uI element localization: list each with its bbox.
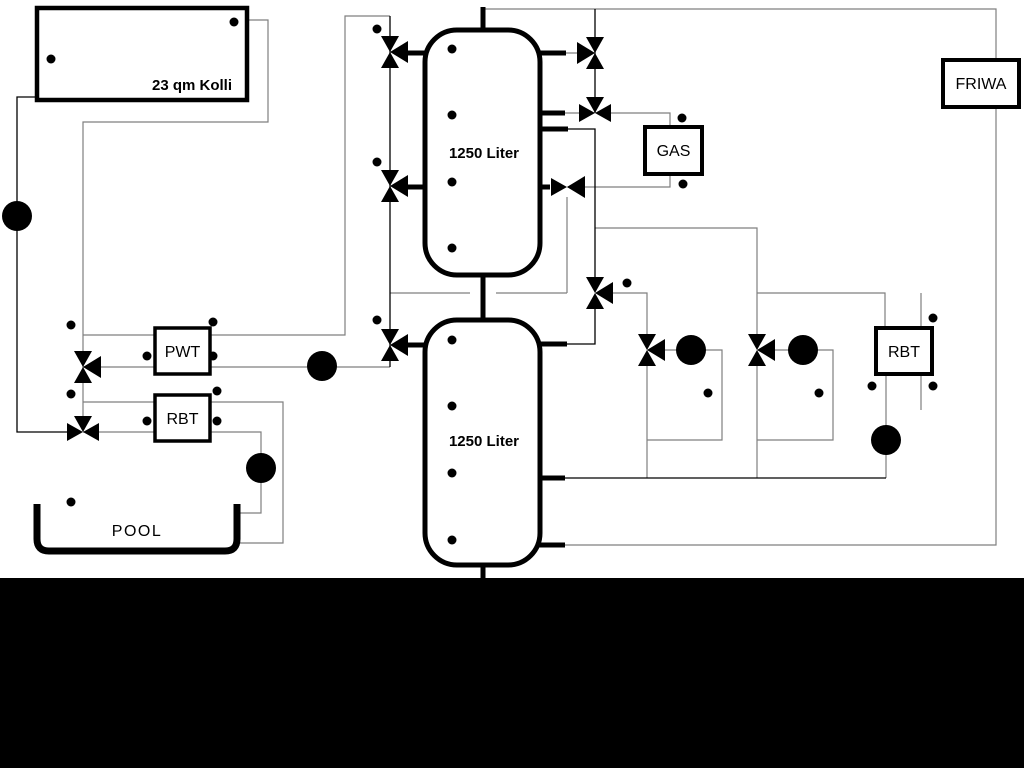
collector-label: 23 qm Kolli <box>152 77 232 94</box>
pwt-label: PWT <box>165 344 201 361</box>
tank1-label: 1250 Liter <box>449 145 519 162</box>
pump-circuit-2 <box>788 335 818 365</box>
rbt-heating-label: RBT <box>888 344 920 361</box>
tank2-label: 1250 Liter <box>449 433 519 450</box>
rbt-pool-label: RBT <box>167 411 199 428</box>
pool-label: POOL <box>112 523 162 540</box>
pump-pool <box>246 453 276 483</box>
pump-solar <box>2 201 32 231</box>
friwa-label: FRIWA <box>956 76 1007 93</box>
pump-rbt-heating <box>871 425 901 455</box>
gas-label: GAS <box>657 143 691 160</box>
schematic-screen: 23 qm Kolli 1250 Liter 1250 Liter PWT RB… <box>0 0 1024 768</box>
hydraulic-diagram: 23 qm Kolli 1250 Liter 1250 Liter PWT RB… <box>0 0 1024 768</box>
bottom-black-bar <box>0 578 1024 768</box>
pump-pwt <box>307 351 337 381</box>
pump-circuit-1 <box>676 335 706 365</box>
